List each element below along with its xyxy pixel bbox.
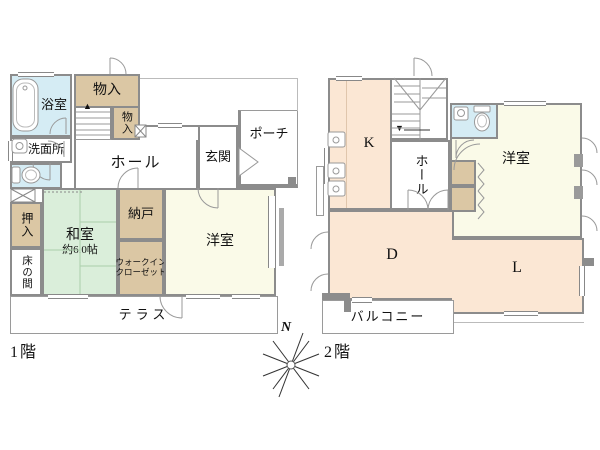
balcony-wall-corner <box>322 293 350 300</box>
hall-1f-label: ホール <box>110 155 161 172</box>
washroom-label: 洗面所 <box>18 143 64 157</box>
balcony-wall-corner <box>344 300 351 312</box>
tokonoma-label: 床の間 <box>20 255 32 290</box>
balcony-door-gap <box>352 297 372 303</box>
closet-2f-b <box>450 186 476 212</box>
dining-label: D <box>386 246 398 264</box>
room-toilet-2f <box>450 103 498 139</box>
stairs-down-arrow: ▼ <box>395 123 404 133</box>
yoshitsu-2f-label: 洋室 <box>502 152 530 168</box>
window <box>579 266 585 296</box>
room-hall-2f: ホール <box>390 140 450 210</box>
porch-pillar <box>288 177 296 185</box>
window <box>504 101 546 106</box>
room-wic-1f: ウォークイン クローゼット <box>118 240 164 296</box>
room-kitchen-2f: K <box>328 78 392 210</box>
window <box>336 76 362 81</box>
floor2-label: 2階 <box>324 338 352 362</box>
wic-label-line2: クローゼット <box>116 268 167 278</box>
porch-label: ポーチ <box>249 127 288 142</box>
stairs-1f <box>74 106 112 140</box>
compass-north-label: N <box>280 320 292 335</box>
window <box>48 294 88 299</box>
washitsu-size-label: 約6.0帖 <box>62 244 98 257</box>
kitchen-counter-line <box>346 80 347 208</box>
washitsu-label: 和室 <box>66 228 94 244</box>
room-storeroom-1f: 納戸 <box>118 188 164 240</box>
wall-patch <box>452 210 454 240</box>
storeroom-label: 納戸 <box>128 207 154 222</box>
yoshitsu-1f-label: 洋室 <box>206 234 234 250</box>
room-tokonoma-1f: 床の間 <box>10 248 42 296</box>
window <box>268 196 276 268</box>
oshiire-label: 押入 <box>19 212 33 238</box>
bath-label: 浴室 <box>41 98 67 113</box>
room-living-2f: L <box>452 238 584 314</box>
room-washitsu-1f: 和室 約6.0帖 <box>42 188 118 296</box>
hall-2f-label: ホール <box>413 154 428 196</box>
entrance-label: 玄関 <box>205 150 231 165</box>
room-yoshitsu-1f: 洋室 <box>164 188 276 296</box>
terrace-label: テラス <box>119 308 170 323</box>
balcony-label: バルコニー <box>351 310 426 325</box>
wall-step <box>582 258 594 266</box>
room-toilet-1f <box>10 163 62 189</box>
window <box>504 311 538 316</box>
floor-plan-canvas: 浴室 物入 物入 洗面所 ホール 玄関 ポーチ 押入 床の間 和室 約6.0帖 … <box>0 0 600 450</box>
window <box>18 72 54 77</box>
room-entrance-1f: 玄関 <box>198 125 238 190</box>
room-storage-side-1f: 物入 <box>112 106 140 140</box>
window <box>8 141 13 161</box>
eaves-line-top-1f <box>140 78 298 79</box>
balcony-2f: バルコニー <box>322 300 454 334</box>
kitchen-label: K <box>346 135 375 152</box>
window <box>158 123 182 128</box>
closet-2f-a <box>450 160 476 186</box>
room-hall-1f: ホール <box>74 140 198 190</box>
storage-top-label: 物入 <box>93 83 121 99</box>
terrace-1f: テラス <box>10 296 278 334</box>
stairs-up-arrow: ▲ <box>83 101 92 111</box>
room-dining-2f: D <box>328 210 454 300</box>
living-label: L <box>512 259 522 277</box>
room-bath-1f: 浴室 <box>10 74 72 137</box>
room-washroom-1f: 洗面所 <box>10 137 72 163</box>
pipe-space-2f <box>316 166 324 216</box>
window <box>324 148 329 184</box>
shutter-box <box>279 208 284 266</box>
window <box>186 294 220 299</box>
window <box>232 294 260 299</box>
storage-side-label: 物入 <box>120 111 133 135</box>
room-oshiire-1f: 押入 <box>10 202 42 248</box>
eaves-line-side-1f <box>297 78 298 111</box>
eaves-line-2f <box>454 322 584 323</box>
floor1-label: 1階 <box>10 338 38 362</box>
